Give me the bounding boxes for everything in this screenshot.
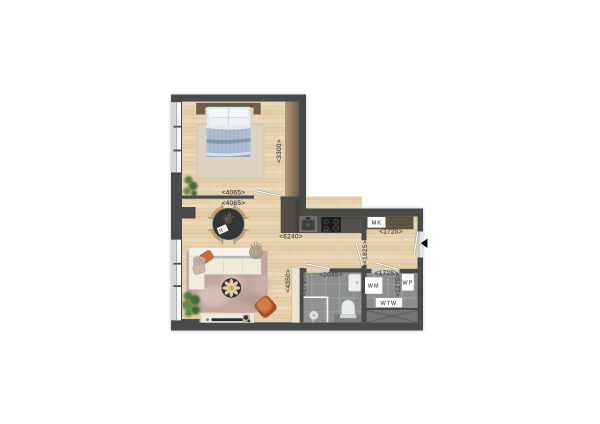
- svg-text:<1795>: <1795>: [301, 273, 308, 296]
- svg-text:<6240>: <6240>: [279, 234, 302, 241]
- svg-text:WTW: WTW: [381, 301, 397, 307]
- svg-text:<1275>: <1275>: [395, 273, 402, 296]
- svg-text:<4065>: <4065>: [222, 190, 245, 197]
- svg-text:MK: MK: [372, 220, 382, 226]
- svg-text:<1725>: <1725>: [379, 228, 402, 235]
- svg-text:<2045>: <2045>: [319, 272, 342, 279]
- svg-text:<4350>: <4350>: [285, 269, 292, 292]
- svg-text:WM: WM: [368, 284, 380, 290]
- svg-text:WP: WP: [403, 280, 414, 286]
- svg-text:<3300>: <3300>: [276, 139, 283, 162]
- svg-text:<1825>: <1825>: [362, 240, 369, 263]
- svg-text:<4065>: <4065>: [222, 200, 245, 207]
